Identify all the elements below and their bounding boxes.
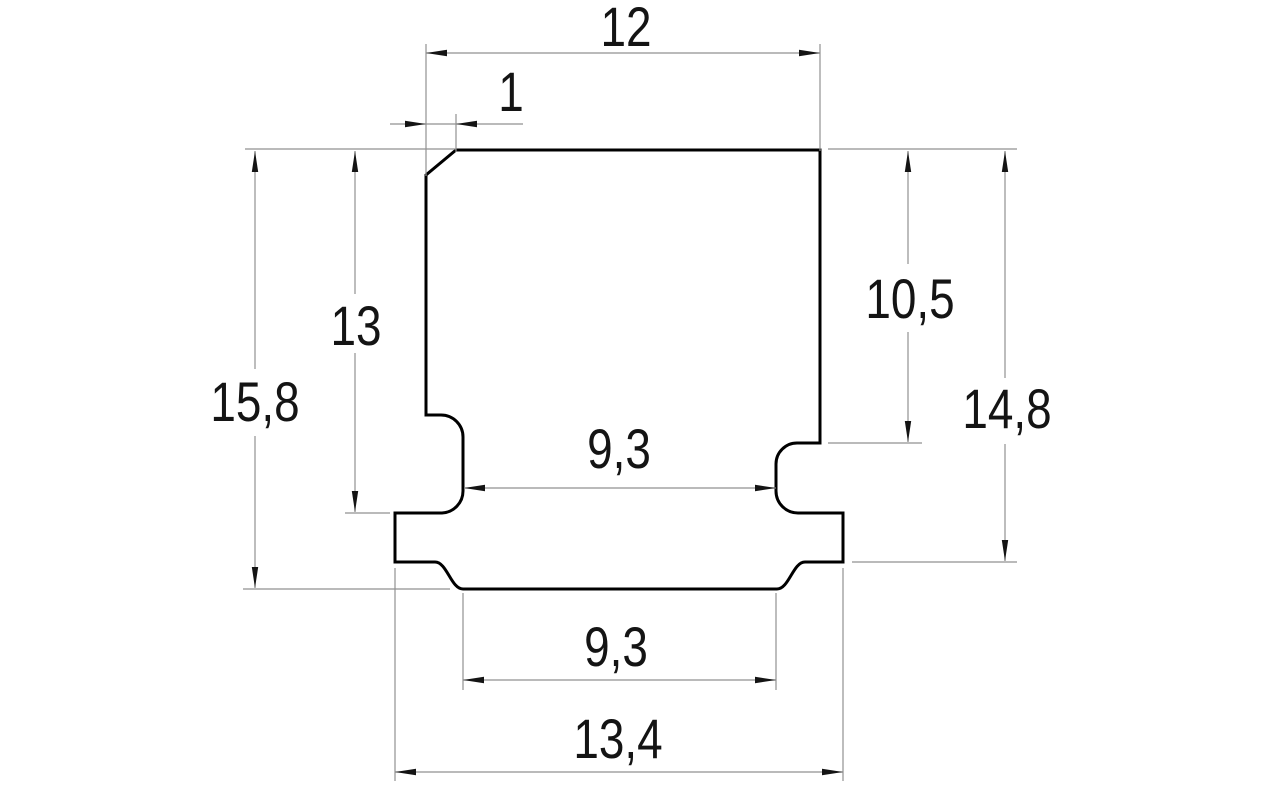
arrowhead-right: [799, 50, 820, 56]
dim-label-flange-width: 13,4: [573, 708, 662, 770]
dim-label-chamfer-width: 1: [498, 61, 524, 123]
dim-upper-section-height: 13: [330, 151, 390, 513]
dim-neck-width: 9,3: [464, 418, 776, 492]
drawing-canvas: 12 1 15,8 13: [0, 0, 1280, 799]
arrowhead-right: [755, 485, 776, 491]
dim-chamfer-width: 1: [390, 61, 524, 152]
arrowhead-right: [456, 121, 477, 127]
arrowhead-left: [395, 769, 416, 775]
arrowhead-left: [464, 485, 485, 491]
arrowhead-top: [352, 151, 358, 172]
arrowhead-right: [822, 769, 843, 775]
dim-label-flange-bottom-depth: 14,8: [962, 378, 1051, 440]
dim-undercut-depth: 10,5: [828, 151, 955, 443]
arrowhead-left: [463, 677, 484, 683]
dim-label-neck-width: 9,3: [587, 418, 651, 480]
arrowhead-right: [755, 677, 776, 683]
arrowhead-bottom: [905, 421, 911, 442]
dim-label-top-width: 12: [600, 0, 651, 58]
arrowhead-bottom: [252, 567, 258, 588]
dim-label-upper-section-height: 13: [330, 295, 381, 357]
profile-outline: [395, 150, 843, 589]
technical-drawing-page: 12 1 15,8 13: [0, 0, 1280, 799]
dim-label-bottom-face-width: 9,3: [584, 616, 648, 678]
dim-flange-bottom-depth: 14,8: [852, 151, 1052, 562]
dim-label-undercut-depth: 10,5: [865, 268, 954, 330]
arrowhead-left: [405, 121, 426, 127]
arrowhead-top: [905, 151, 911, 172]
dim-overall-height: 15,8: [210, 151, 450, 589]
arrowhead-bottom: [1002, 540, 1008, 561]
dim-bottom-face-width: 9,3: [463, 593, 776, 690]
arrowhead-bottom: [352, 491, 358, 512]
arrowhead-top: [1002, 151, 1008, 172]
arrowhead-left: [426, 50, 447, 56]
arrowhead-top: [252, 151, 258, 172]
dim-label-overall-height: 15,8: [210, 371, 299, 433]
